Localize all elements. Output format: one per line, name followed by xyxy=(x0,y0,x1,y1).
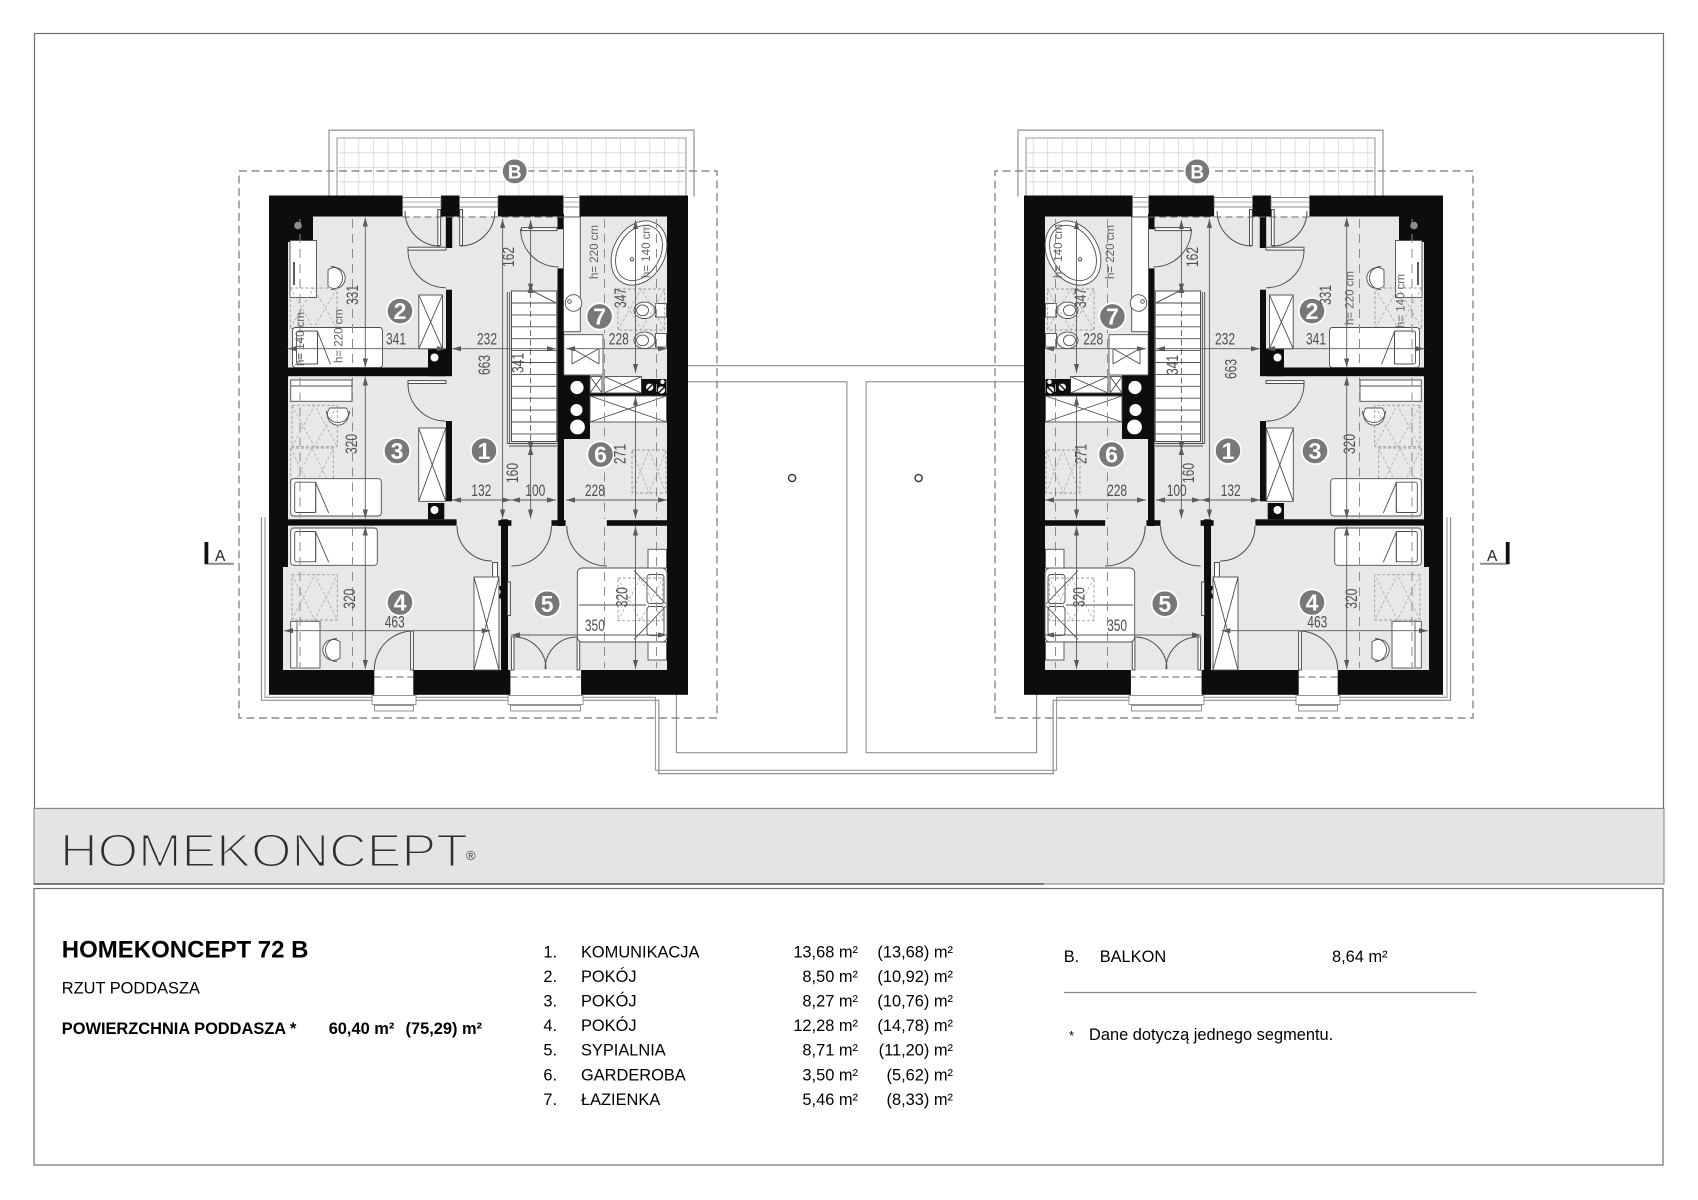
svg-text:5.: 5. xyxy=(543,1042,557,1060)
svg-text:BALKON: BALKON xyxy=(1100,948,1167,966)
svg-text:SYPIALNIA: SYPIALNIA xyxy=(581,1042,666,1060)
svg-text:12,28 m²: 12,28 m² xyxy=(793,1017,858,1035)
svg-text:2: 2 xyxy=(1306,298,1319,324)
svg-text:2: 2 xyxy=(394,298,407,324)
svg-text:228: 228 xyxy=(609,330,629,349)
svg-text:7.: 7. xyxy=(543,1091,557,1109)
svg-text:1: 1 xyxy=(478,438,491,464)
svg-text:POKÓJ: POKÓJ xyxy=(581,1016,637,1035)
svg-text:331: 331 xyxy=(1316,285,1335,305)
svg-text:8,71 m²: 8,71 m² xyxy=(802,1042,858,1060)
svg-text:GARDEROBA: GARDEROBA xyxy=(581,1066,686,1084)
svg-text:350: 350 xyxy=(585,616,605,635)
svg-text:3: 3 xyxy=(391,438,404,464)
svg-text:341: 341 xyxy=(1163,355,1182,375)
svg-text:100: 100 xyxy=(525,481,545,500)
svg-text:7: 7 xyxy=(1106,304,1119,330)
svg-text:232: 232 xyxy=(1215,330,1235,349)
svg-text:(13,68) m²: (13,68) m² xyxy=(877,943,953,961)
svg-text:3: 3 xyxy=(1309,438,1322,464)
svg-text:228: 228 xyxy=(1083,330,1103,349)
svg-text:5: 5 xyxy=(1158,591,1171,617)
svg-text:h= 220 cm: h= 220 cm xyxy=(1105,225,1117,279)
svg-text:271: 271 xyxy=(610,444,629,464)
svg-text:2.: 2. xyxy=(543,968,557,986)
svg-text:663: 663 xyxy=(475,355,494,375)
svg-text:(75,29) m²: (75,29) m² xyxy=(406,1020,483,1038)
svg-text:60,40 m²: 60,40 m² xyxy=(329,1020,395,1038)
svg-text:5: 5 xyxy=(541,591,554,617)
svg-text:A: A xyxy=(1487,548,1498,565)
svg-text:RZUT PODDASZA: RZUT PODDASZA xyxy=(62,980,200,998)
svg-text:350: 350 xyxy=(1107,616,1127,635)
svg-text:h= 220 cm: h= 220 cm xyxy=(589,225,601,279)
svg-text:(5,62) m²: (5,62) m² xyxy=(887,1066,954,1084)
svg-text:h= 140 cm: h= 140 cm xyxy=(295,312,307,366)
svg-text:341: 341 xyxy=(508,353,527,373)
svg-text:HOMEKONCEPT: HOMEKONCEPT xyxy=(60,825,468,877)
svg-text:7: 7 xyxy=(593,304,606,330)
svg-text:A: A xyxy=(215,548,226,565)
svg-text:B.: B. xyxy=(1064,948,1080,966)
svg-text:6: 6 xyxy=(594,442,607,468)
svg-text:13,68 m²: 13,68 m² xyxy=(793,943,858,961)
svg-text:h= 220 cm: h= 220 cm xyxy=(334,309,346,363)
svg-text:320: 320 xyxy=(342,434,361,454)
svg-text:h= 140 cm: h= 140 cm xyxy=(1396,274,1408,328)
svg-text:8,50 m²: 8,50 m² xyxy=(802,968,858,986)
svg-text:132: 132 xyxy=(1221,481,1241,500)
svg-text:162: 162 xyxy=(499,247,518,267)
svg-text:POWIERZCHNIA PODDASZA *: POWIERZCHNIA PODDASZA * xyxy=(62,1020,297,1038)
svg-text:(14,78) m²: (14,78) m² xyxy=(877,1017,953,1035)
svg-text:POKÓJ: POKÓJ xyxy=(581,967,637,986)
svg-text:(8,33) m²: (8,33) m² xyxy=(887,1091,954,1109)
svg-text:663: 663 xyxy=(1222,359,1241,379)
svg-text:1: 1 xyxy=(1222,438,1235,464)
svg-text:8,64 m²: 8,64 m² xyxy=(1332,948,1388,966)
svg-text:KOMUNIKACJA: KOMUNIKACJA xyxy=(581,943,699,961)
svg-text:320: 320 xyxy=(1340,434,1359,454)
svg-text:B: B xyxy=(508,162,522,183)
svg-text:6.: 6. xyxy=(543,1066,557,1084)
svg-text:320: 320 xyxy=(612,587,631,607)
svg-text:3.: 3. xyxy=(543,993,557,1011)
svg-text:h= 220 cm: h= 220 cm xyxy=(1345,271,1357,325)
svg-text:347: 347 xyxy=(611,288,630,308)
svg-text:271: 271 xyxy=(1072,444,1091,464)
svg-text:4: 4 xyxy=(1306,590,1319,616)
svg-text:160: 160 xyxy=(503,463,522,483)
svg-text:(10,92) m²: (10,92) m² xyxy=(877,968,953,986)
svg-text:5,46 m²: 5,46 m² xyxy=(802,1091,858,1109)
svg-text:HOMEKONCEPT 72 B: HOMEKONCEPT 72 B xyxy=(62,937,309,964)
svg-text:8,27 m²: 8,27 m² xyxy=(802,993,858,1011)
svg-text:228: 228 xyxy=(1107,481,1127,500)
svg-text:*: * xyxy=(1069,1028,1074,1043)
svg-text:(11,20) m²: (11,20) m² xyxy=(879,1042,954,1060)
svg-text:320: 320 xyxy=(1070,587,1089,607)
svg-text:4: 4 xyxy=(394,590,407,616)
svg-text:132: 132 xyxy=(471,481,491,500)
svg-text:162: 162 xyxy=(1183,247,1202,267)
svg-text:347: 347 xyxy=(1071,288,1090,308)
svg-text:ŁAZIENKA: ŁAZIENKA xyxy=(581,1091,660,1109)
svg-text:341: 341 xyxy=(1306,330,1326,349)
svg-text:228: 228 xyxy=(585,481,605,500)
svg-text:1.: 1. xyxy=(543,943,557,961)
svg-text:341: 341 xyxy=(386,330,406,349)
svg-text:160: 160 xyxy=(1179,463,1198,483)
svg-text:6: 6 xyxy=(1105,442,1118,468)
svg-text:Dane dotyczą jednego segmentu.: Dane dotyczą jednego segmentu. xyxy=(1089,1026,1333,1044)
svg-text:POKÓJ: POKÓJ xyxy=(581,992,637,1011)
svg-text:320: 320 xyxy=(1342,589,1361,609)
svg-text:3,50 m²: 3,50 m² xyxy=(802,1066,858,1084)
svg-text:h= 140 cm: h= 140 cm xyxy=(641,224,653,278)
svg-text:331: 331 xyxy=(343,285,362,305)
svg-text:4.: 4. xyxy=(543,1017,557,1035)
svg-text:B: B xyxy=(1190,162,1204,183)
svg-text:(10,76) m²: (10,76) m² xyxy=(877,993,953,1011)
svg-text:232: 232 xyxy=(477,330,497,349)
svg-text:®: ® xyxy=(466,848,476,863)
svg-text:h= 140 cm: h= 140 cm xyxy=(1053,224,1065,278)
svg-text:320: 320 xyxy=(340,589,359,609)
